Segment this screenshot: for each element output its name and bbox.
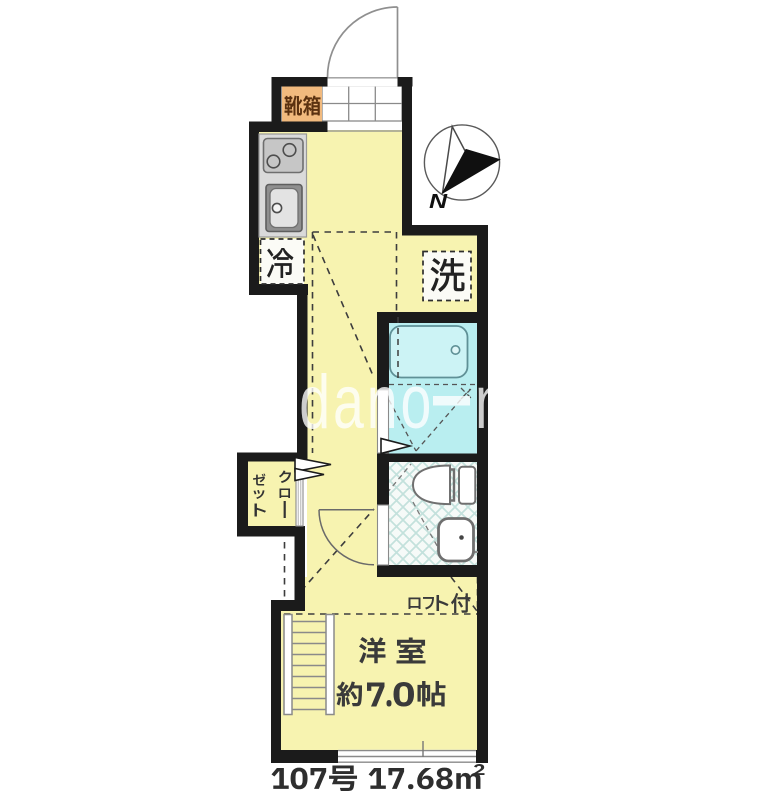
svg-text:n: n [475, 361, 506, 446]
svg-text:idano: idano [284, 361, 434, 446]
